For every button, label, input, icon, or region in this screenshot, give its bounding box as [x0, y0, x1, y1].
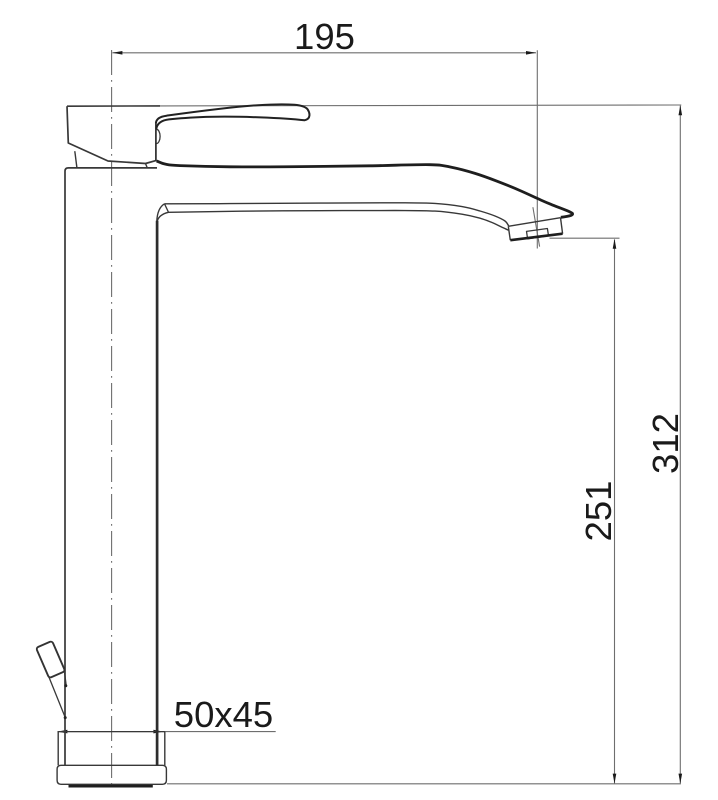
svg-text:195: 195 [294, 16, 355, 57]
svg-text:50x45: 50x45 [174, 694, 273, 735]
svg-text:251: 251 [578, 481, 619, 542]
svg-text:312: 312 [645, 413, 686, 474]
